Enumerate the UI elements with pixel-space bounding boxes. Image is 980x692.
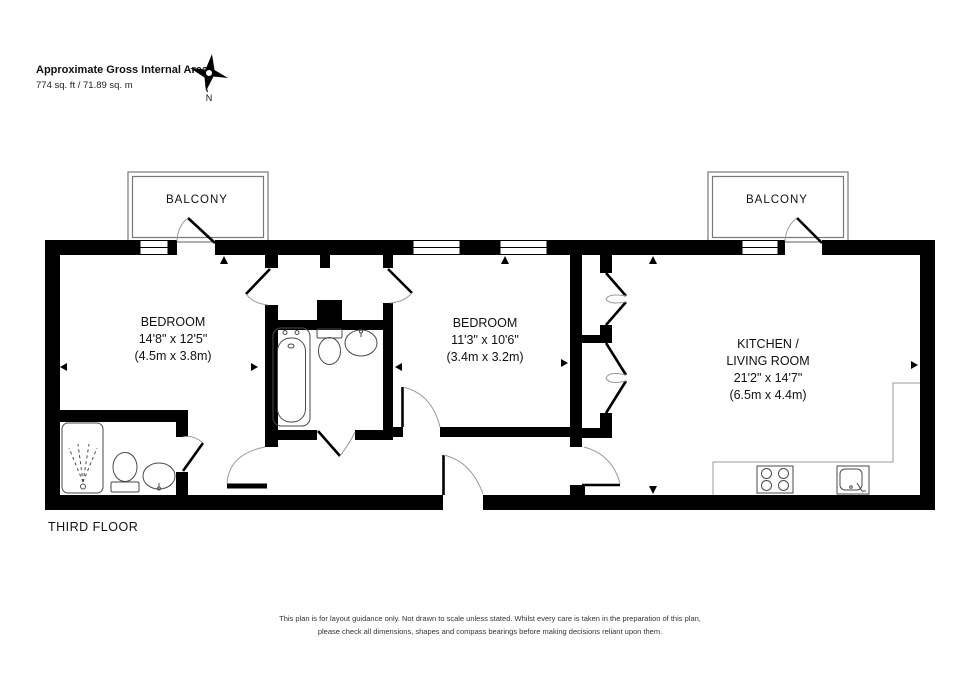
bedroom1-closet-door-icon bbox=[246, 269, 270, 305]
floor-plan-page: Approximate Gross Internal Area 774 sq. … bbox=[0, 0, 980, 692]
cupboard-double-door-icon bbox=[606, 343, 626, 413]
entrance-door-icon bbox=[444, 455, 484, 495]
balcony-right-label: BALCONY bbox=[746, 194, 808, 206]
floor-plan-canvas: Approximate Gross Internal Area 774 sq. … bbox=[0, 0, 980, 692]
room-labels: BEDROOM 14'8" x 12'5" (4.5m x 3.8m) BEDR… bbox=[134, 315, 809, 402]
bedroom1-imperial: 14'8" x 12'5" bbox=[139, 332, 208, 346]
floor-label: THIRD FLOOR bbox=[48, 520, 138, 534]
balcony-left: BALCONY bbox=[128, 172, 268, 242]
header: Approximate Gross Internal Area 774 sq. … bbox=[36, 64, 209, 91]
bedroom2-door-icon bbox=[403, 387, 441, 427]
kitchen-name-line2: LIVING ROOM bbox=[726, 354, 809, 368]
window-icon bbox=[140, 241, 168, 255]
balcony-left-door-icon bbox=[177, 218, 215, 243]
compass-north-label: N bbox=[206, 93, 213, 103]
basin-icon bbox=[143, 463, 175, 490]
ensuite-fixtures bbox=[62, 423, 175, 493]
bedroom1-name: BEDROOM bbox=[141, 315, 206, 329]
bedroom2-closet-door-icon bbox=[388, 269, 412, 303]
toilet-icon bbox=[317, 329, 342, 365]
bedroom2-metric: (3.4m x 3.2m) bbox=[446, 350, 523, 364]
window-icon bbox=[742, 241, 778, 255]
kitchen-living-label: KITCHEN / LIVING ROOM 21'2" x 14'7" (6.5… bbox=[726, 337, 809, 402]
kitchen-imperial: 21'2" x 14'7" bbox=[734, 371, 803, 385]
bedroom1-lobby-door-icon bbox=[227, 447, 267, 489]
bathroom-fixtures bbox=[273, 328, 377, 426]
balcony-right: BALCONY bbox=[708, 172, 848, 242]
disclaimer-line1: This plan is for layout guidance only. N… bbox=[279, 614, 701, 623]
compass-icon: N bbox=[190, 54, 228, 103]
disclaimer-line2: please check all dimensions, shapes and … bbox=[318, 627, 662, 636]
gross-area-title: Approximate Gross Internal Area bbox=[36, 64, 209, 76]
balcony-right-door-icon bbox=[785, 218, 822, 243]
toilet-icon bbox=[111, 453, 139, 493]
hob-icon bbox=[757, 466, 793, 493]
kitchen-name-line1: KITCHEN / bbox=[737, 337, 799, 351]
bedroom2-label: BEDROOM 11'3" x 10'6" (3.4m x 3.2m) bbox=[446, 316, 523, 364]
bedroom1-metric: (4.5m x 3.8m) bbox=[134, 349, 211, 363]
window-icon bbox=[500, 241, 547, 255]
cupboard-double-door-icon bbox=[606, 273, 626, 325]
basin-icon bbox=[345, 330, 377, 356]
ensuite-door-icon bbox=[183, 436, 203, 471]
gross-area-value: 774 sq. ft / 71.89 sq. m bbox=[36, 80, 133, 91]
shower-icon bbox=[62, 423, 103, 493]
bedroom2-imperial: 11'3" x 10'6" bbox=[451, 333, 519, 347]
balcony-left-label: BALCONY bbox=[166, 194, 228, 206]
bedroom1-label: BEDROOM 14'8" x 12'5" (4.5m x 3.8m) bbox=[134, 315, 211, 363]
disclaimer: This plan is for layout guidance only. N… bbox=[279, 614, 701, 636]
kitchen-metric: (6.5m x 4.4m) bbox=[729, 388, 806, 402]
window-icon bbox=[413, 241, 460, 255]
bedroom2-name: BEDROOM bbox=[453, 316, 518, 330]
kitchen-door-icon bbox=[582, 447, 620, 485]
bathroom-door-icon bbox=[318, 431, 355, 456]
kitchen-sink-icon bbox=[837, 466, 869, 494]
bathtub-icon bbox=[273, 328, 310, 426]
